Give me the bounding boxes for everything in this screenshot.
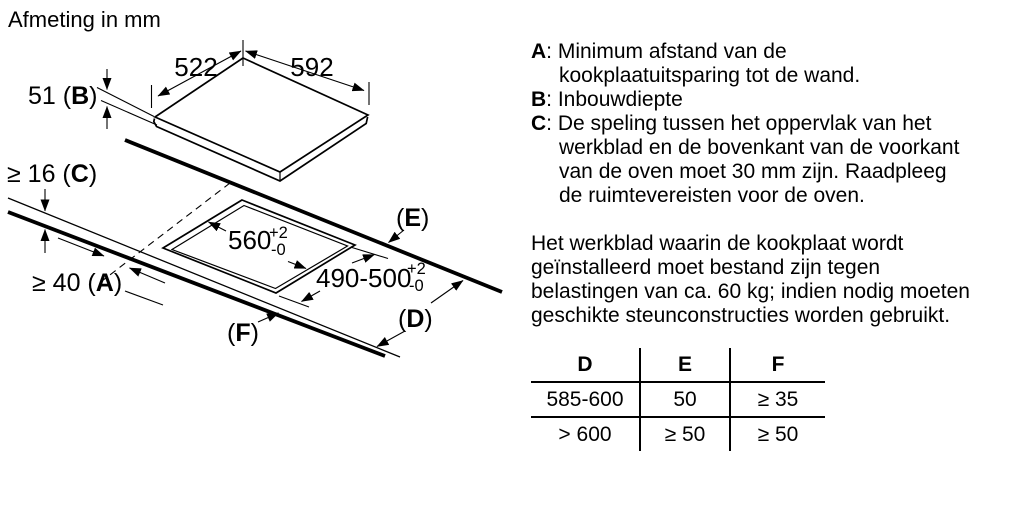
legend-letter-c: C [531, 112, 546, 135]
table-cell-e2: ≥ 50 [640, 417, 730, 451]
dim-592-label: 592 [290, 52, 333, 82]
cutout-depth-ext-bottom [279, 296, 309, 307]
svg-text:-0: -0 [271, 241, 286, 259]
legend-letter-a: A [531, 40, 546, 63]
legend-text-b: Inbouwdiepte [558, 88, 683, 111]
dim-490-500-label: 490-500 +2 -0 [316, 260, 426, 295]
svg-text:490-500: 490-500 [316, 263, 411, 293]
legend-item-c: C: De speling tussen het oppervlak van h… [531, 112, 965, 208]
legend-text-c: De speling tussen het oppervlak van het … [558, 112, 960, 207]
dim-b-label: 51 (B) [28, 82, 97, 110]
svg-text:+2: +2 [407, 260, 426, 278]
table-cell-d1: 585-600 [531, 382, 640, 417]
table-cell-d2: > 600 [531, 417, 640, 451]
legend-letter-b: B [531, 88, 546, 111]
dim-522-label: 522 [174, 52, 217, 82]
cutout-depth-ext-right [352, 248, 388, 259]
svg-text:-0: -0 [409, 277, 424, 295]
label-d-arrow-down [377, 331, 405, 347]
installation-diagram: 522 592 51 (B) ≥ 16 (C) ≥ 40 (A) (E) (D)… [0, 0, 512, 512]
table-row: 585-600 50 ≥ 35 [531, 382, 825, 417]
table-header-e: E [640, 348, 730, 382]
legend-item-a: A: Minimum afstand van de kookplaatuitsp… [531, 40, 965, 88]
worktop-load-note: Het werkblad waarin de kookplaat wordt g… [531, 232, 993, 328]
legend-item-b: B: Inbouwdiepte [531, 88, 965, 112]
table-row: > 600 ≥ 50 ≥ 50 [531, 417, 825, 451]
label-e: (E) [396, 204, 429, 232]
legend-sep: : [546, 88, 558, 111]
dim-c-label: ≥ 16 (C) [7, 160, 97, 188]
table-cell-e1: 50 [640, 382, 730, 417]
dimension-table: D E F 585-600 50 ≥ 35 > 600 ≥ 50 ≥ 50 [531, 348, 825, 451]
table-cell-f2: ≥ 50 [730, 417, 825, 451]
dim-490-arrow-right [352, 255, 375, 264]
legend-text-a: Minimum afstand van de kookplaatuitspari… [558, 40, 860, 87]
table-cell-f1: ≥ 35 [730, 382, 825, 417]
wall-distance-ext [125, 291, 163, 305]
label-d: (D) [398, 305, 433, 333]
dim-a-label: ≥ 40 (A) [32, 269, 122, 297]
table-header-row: D E F [531, 348, 825, 382]
label-f: (F) [227, 319, 259, 347]
svg-text:560: 560 [228, 225, 271, 255]
table-header-d: D [531, 348, 640, 382]
label-d-arrow-up [431, 281, 463, 304]
legend-sep: : [546, 40, 558, 63]
label-f-arrow [258, 313, 279, 322]
legend: A: Minimum afstand van de kookplaatuitsp… [531, 40, 965, 208]
dim-560-label: 560 +2 -0 [228, 224, 288, 259]
text-column: A: Minimum afstand van de kookplaatuitsp… [531, 40, 993, 451]
legend-sep: : [546, 112, 558, 135]
svg-text:+2: +2 [269, 224, 288, 242]
table-header-f: F [730, 348, 825, 382]
